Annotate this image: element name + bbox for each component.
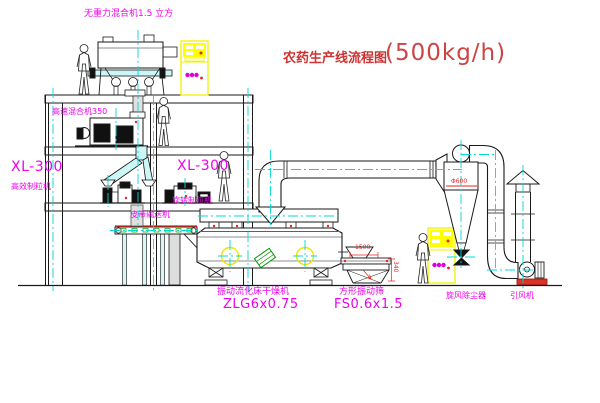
cyclone-diameter-dim: Φ600 — [451, 179, 467, 185]
process-flow-diagram: 无重力混合机1.5 立方 农药生产线流程图 (500kg/h) 高速混合机350… — [0, 0, 600, 403]
control-cabinet-1 — [181, 41, 208, 95]
sieve-height-dim: 340 — [392, 261, 398, 272]
vibrating-sieve — [338, 247, 391, 283]
mid-granulator-label: 旋转制粒机 — [172, 197, 212, 205]
high-speed-mixer-label: 高速混合机350 — [52, 108, 107, 116]
diagram-capacity: (500kg/h) — [385, 42, 506, 65]
mid-granulator-model: XL-300 — [177, 159, 229, 173]
dryer-model-label: ZLG6x0.75 — [223, 298, 299, 311]
dryer-name-label: 振动流化床干燥机 — [217, 288, 289, 297]
sieve-model-label: FS0.6x1.5 — [334, 298, 403, 311]
person-top-floor — [77, 45, 91, 95]
cyclone-label: 旋风除尘器 — [446, 292, 486, 300]
left-granulator-model: XL-300 — [11, 160, 63, 174]
left-granulator-label: 高效制粒机 — [11, 183, 51, 191]
belt-conveyor-label: 皮带输送机 — [130, 211, 170, 219]
dryer-port-dots — [213, 225, 329, 227]
dryer-feet — [205, 268, 332, 285]
sieve-name-label: 方形振动筛 — [339, 288, 384, 297]
fan-label: 引风机 — [510, 292, 534, 300]
induced-draft-fan — [517, 262, 547, 285]
diagram-title: 农药生产线流程图 — [283, 52, 387, 65]
sieve-length-dim: 1500 — [355, 245, 370, 251]
gravity-mixer-label: 无重力混合机1.5 立方 — [84, 10, 173, 19]
control-cabinet-2 — [428, 228, 455, 283]
high-speed-mixer — [75, 112, 148, 146]
person-second-floor — [157, 97, 171, 145]
